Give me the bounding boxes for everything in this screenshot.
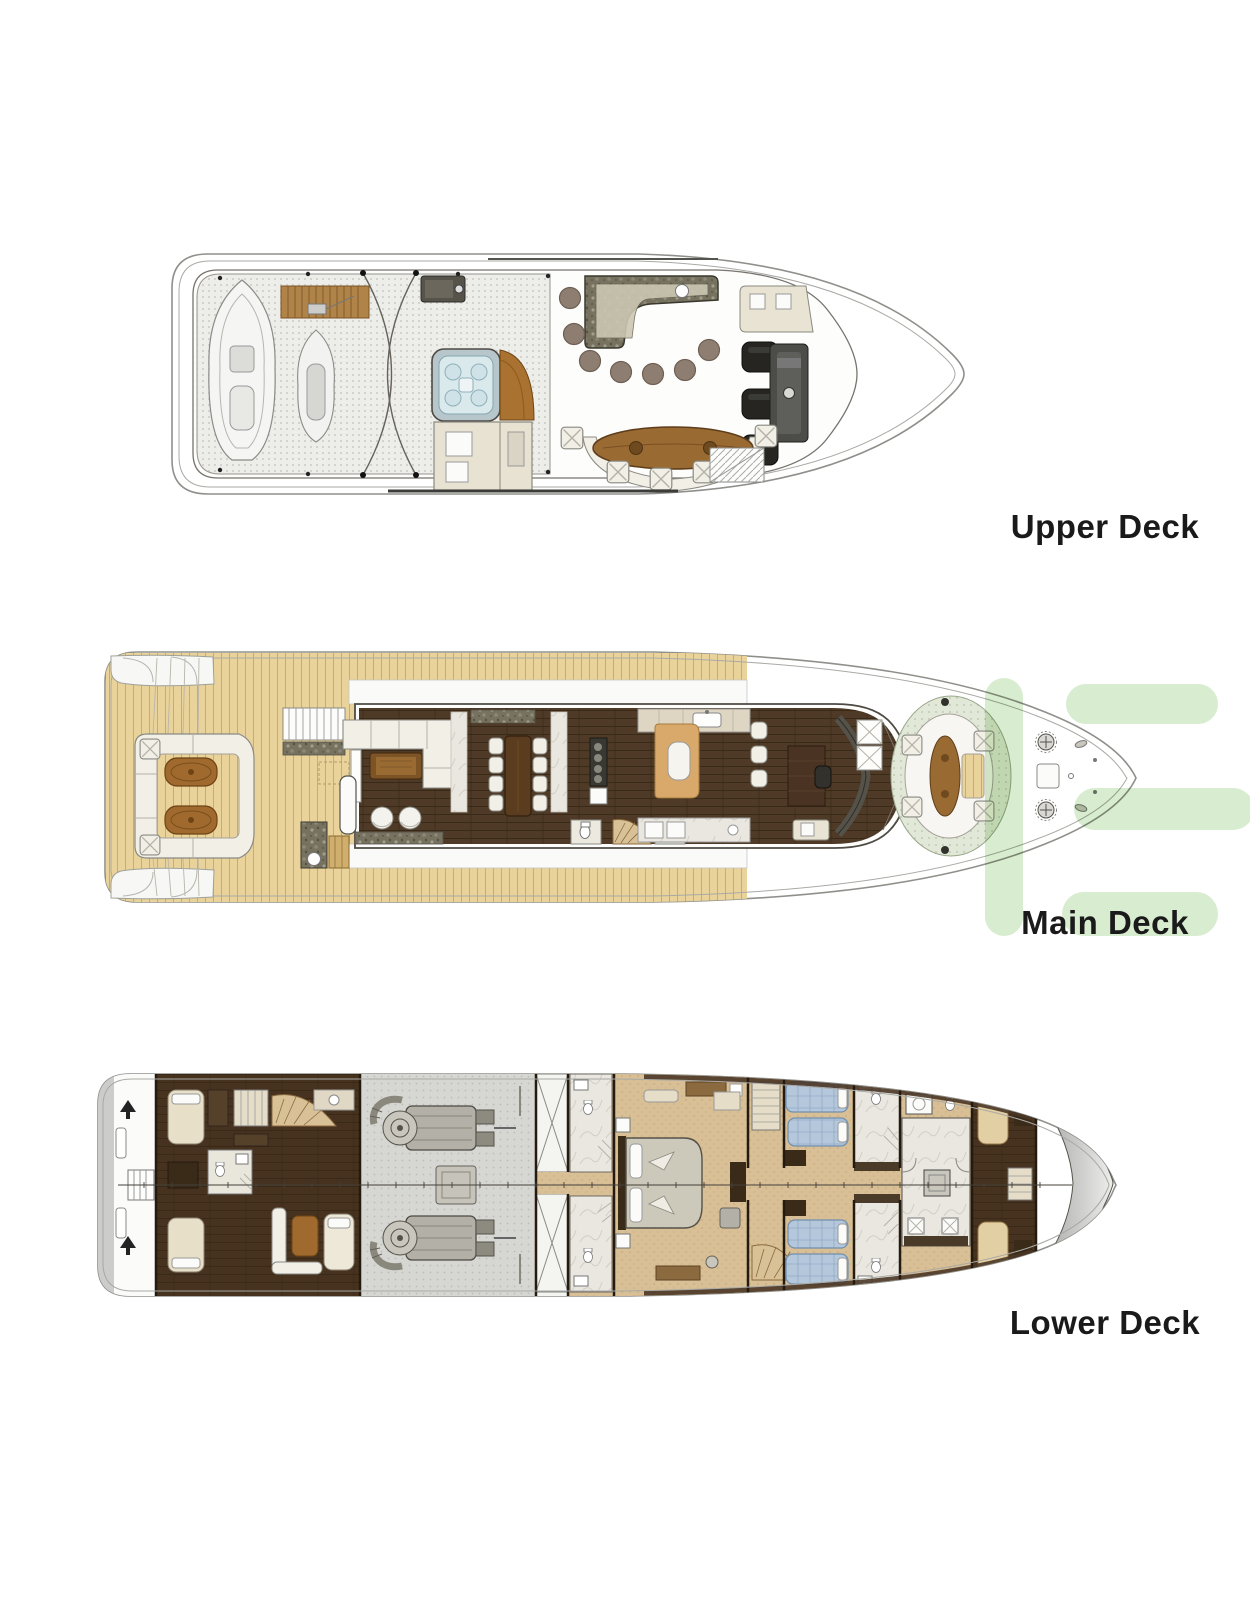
deck-cabinet bbox=[434, 422, 532, 490]
salon-credenza bbox=[355, 832, 443, 844]
oven bbox=[590, 788, 607, 804]
lower-deck-plan-drawing bbox=[84, 1066, 1120, 1300]
crew-mess-table bbox=[292, 1216, 318, 1256]
lower-deck-label: Lower Deck bbox=[990, 1304, 1220, 1342]
swim-platform bbox=[98, 1074, 114, 1296]
side-walkway-top bbox=[349, 680, 747, 704]
bar-sink bbox=[676, 285, 689, 298]
grill-unit bbox=[421, 276, 465, 302]
galley-sink bbox=[693, 713, 721, 727]
booth-chairs bbox=[751, 722, 767, 787]
jet-ski bbox=[298, 330, 335, 442]
main-deck-label: Main Deck bbox=[990, 904, 1220, 942]
upper-deck-figure bbox=[158, 246, 970, 502]
tv-cabinet bbox=[340, 776, 356, 834]
dining-sideboard bbox=[471, 710, 535, 723]
aft-deck-settee bbox=[135, 734, 254, 858]
watermark-bar-middle bbox=[1074, 788, 1250, 830]
lower-deck-figure bbox=[84, 1066, 1120, 1300]
day-head bbox=[571, 820, 601, 844]
coffee-table bbox=[370, 753, 422, 779]
aft-guest-bath-top bbox=[570, 1074, 612, 1172]
upper-deck-plan-drawing bbox=[158, 246, 970, 502]
captain-chair bbox=[815, 766, 831, 788]
yacht-deck-plans-page: Upper Deck bbox=[0, 0, 1250, 1619]
stairs-down bbox=[710, 448, 764, 482]
marble-runner-aft bbox=[451, 712, 467, 812]
jacuzzi bbox=[432, 349, 500, 421]
helm-bench bbox=[740, 286, 813, 332]
aft-guest-bath-bottom bbox=[570, 1196, 612, 1292]
marble-runner-fwd bbox=[551, 712, 567, 812]
dining-set bbox=[489, 736, 547, 816]
watermark-bar-top bbox=[1066, 684, 1218, 724]
upper-deck-label: Upper Deck bbox=[990, 508, 1220, 546]
watermark-bar-vertical bbox=[985, 678, 1023, 936]
crew-mess-bench bbox=[272, 1208, 286, 1268]
